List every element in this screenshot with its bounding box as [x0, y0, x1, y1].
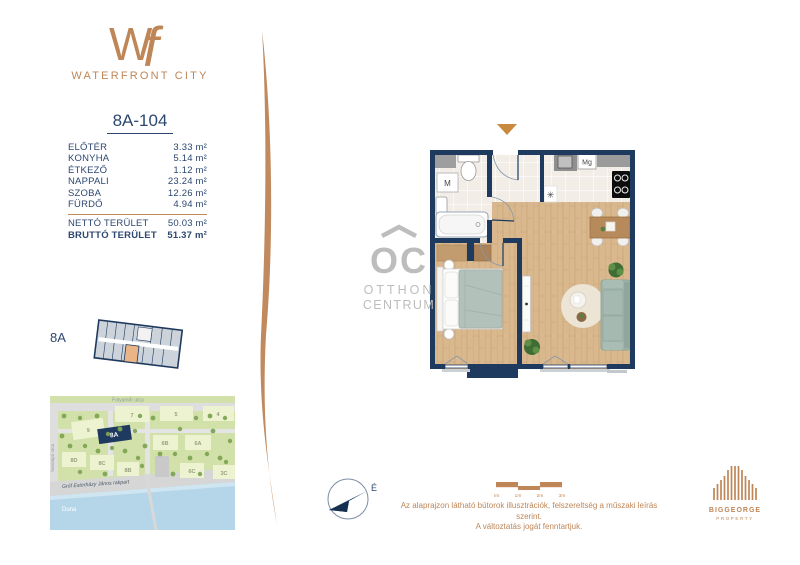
room-area: 23.24 m²: [168, 176, 207, 187]
svg-text:5: 5: [174, 412, 177, 418]
washer-label: M: [444, 179, 451, 188]
total-area: 51.37 m²: [167, 230, 207, 242]
svg-text:8D: 8D: [70, 458, 77, 464]
nightstand: [444, 329, 454, 339]
table-row: FÜRDŐ 4.94 m²: [68, 199, 207, 210]
map-street-top-label: Folyamőr utca: [112, 398, 144, 404]
logo-monogram-f: f: [143, 15, 164, 72]
svg-text:8B: 8B: [124, 468, 131, 474]
total-area: 50.03 m²: [168, 218, 207, 230]
svg-text:6C: 6C: [188, 469, 195, 475]
brand-name: WATERFRONT CITY: [70, 70, 210, 82]
plant: [524, 339, 540, 355]
table-row: ELŐTÉR 3.33 m²: [68, 142, 207, 153]
table-divider: [68, 214, 207, 215]
room-label: SZOBA: [68, 188, 101, 199]
site-map: 7 5 4 9 8A 6B 6A 8D 8C 8B 6C: [50, 396, 235, 530]
gross-area-row: BRUTTÓ TERÜLET 51.37 m²: [68, 230, 207, 242]
scale-bar: 0m 1m 2m 3m: [494, 478, 568, 502]
appliance-symbol: ✳: [547, 190, 555, 200]
keyplan-highlight-unit: [124, 345, 139, 363]
table-row: KONYHA 5.14 m²: [68, 153, 207, 164]
table-row: NAPPALI 23.24 m²: [68, 176, 207, 187]
svg-text:1m: 1m: [515, 493, 522, 499]
watermark-line2: CENTRUM: [358, 298, 440, 312]
svg-text:8C: 8C: [98, 461, 105, 467]
map-street-left-label: Sorompó utca: [50, 443, 55, 472]
svg-text:8A: 8A: [110, 431, 120, 439]
room-label: ELŐTÉR: [68, 142, 107, 153]
watermark-roof-icon: [379, 224, 419, 238]
waterfront-logo: W f: [95, 10, 187, 72]
total-label: BRUTTÓ TERÜLET: [68, 230, 157, 242]
room-label: KONYHA: [68, 153, 109, 164]
svg-text:3m: 3m: [559, 493, 566, 499]
net-area-row: NETTÓ TERÜLET 50.03 m²: [68, 218, 207, 230]
map-river-label: Duna: [62, 507, 77, 513]
floorplan-drawing: M Mg ✳: [425, 120, 640, 382]
room-area: 4.94 m²: [173, 199, 207, 210]
watermark-line1: OTTHON: [358, 283, 440, 297]
svg-text:3C: 3C: [220, 471, 227, 477]
biggeorge-mark-icon: [714, 466, 756, 500]
room-label: NAPPALI: [68, 176, 109, 187]
developer-name: BIGGEORGE: [709, 507, 761, 514]
room-table: ELŐTÉR 3.33 m² KONYHA 5.14 m² ÉTKEZŐ 1.1…: [68, 142, 207, 242]
keyplan-thumbnail: [88, 316, 188, 378]
total-label: NETTÓ TERÜLET: [68, 218, 149, 230]
room-area: 12.26 m²: [168, 188, 207, 199]
watermark-monogram: OC: [358, 243, 440, 279]
room-label: ÉTKEZŐ: [68, 165, 107, 176]
compass-north-label: É: [371, 483, 377, 493]
svg-text:7: 7: [130, 413, 133, 419]
disclaimer-line2: A változtatás jogát fenntartjuk.: [398, 522, 660, 533]
room-label: FÜRDŐ: [68, 199, 103, 210]
svg-text:2m: 2m: [537, 493, 544, 499]
svg-text:6A: 6A: [194, 441, 201, 447]
entrance-arrow-icon: [497, 124, 517, 135]
microwave-label: Mg: [582, 160, 592, 167]
toilet: [461, 162, 476, 181]
decorative-ribbon: [240, 25, 290, 530]
table-row: SZOBA 12.26 m²: [68, 188, 207, 199]
disclaimer: Az alaprajzon látható bútorok illusztrác…: [398, 501, 660, 533]
otthon-centrum-watermark: OC OTTHON CENTRUM: [358, 224, 440, 312]
room-area: 3.33 m²: [173, 142, 207, 153]
room-area: 1.12 m²: [173, 165, 207, 176]
sofa: [601, 280, 630, 350]
disclaimer-line1: Az alaprajzon látható bútorok illusztrác…: [398, 501, 660, 522]
bedroom-desk: [437, 245, 467, 261]
table-row: ÉTKEZŐ 1.12 m²: [68, 165, 207, 176]
biggeorge-logo: BIGGEORGE PROPERTY: [698, 458, 772, 528]
floorplan-sheet: W f WATERFRONT CITY 8A-104 ELŐTÉR 3.33 m…: [0, 0, 800, 565]
plant: [609, 263, 624, 278]
compass-icon: É: [320, 472, 384, 524]
cooktop: [612, 171, 630, 198]
keyplan-floor-label: 8A: [50, 330, 66, 345]
room-area: 5.14 m²: [173, 153, 207, 164]
svg-text:0m: 0m: [494, 493, 499, 499]
developer-subtitle: PROPERTY: [716, 516, 753, 521]
svg-text:6B: 6B: [161, 441, 168, 447]
unit-title: 8A-104: [88, 111, 192, 134]
nightstand: [444, 260, 454, 270]
tv-console: [523, 276, 531, 332]
bed: [437, 267, 502, 331]
